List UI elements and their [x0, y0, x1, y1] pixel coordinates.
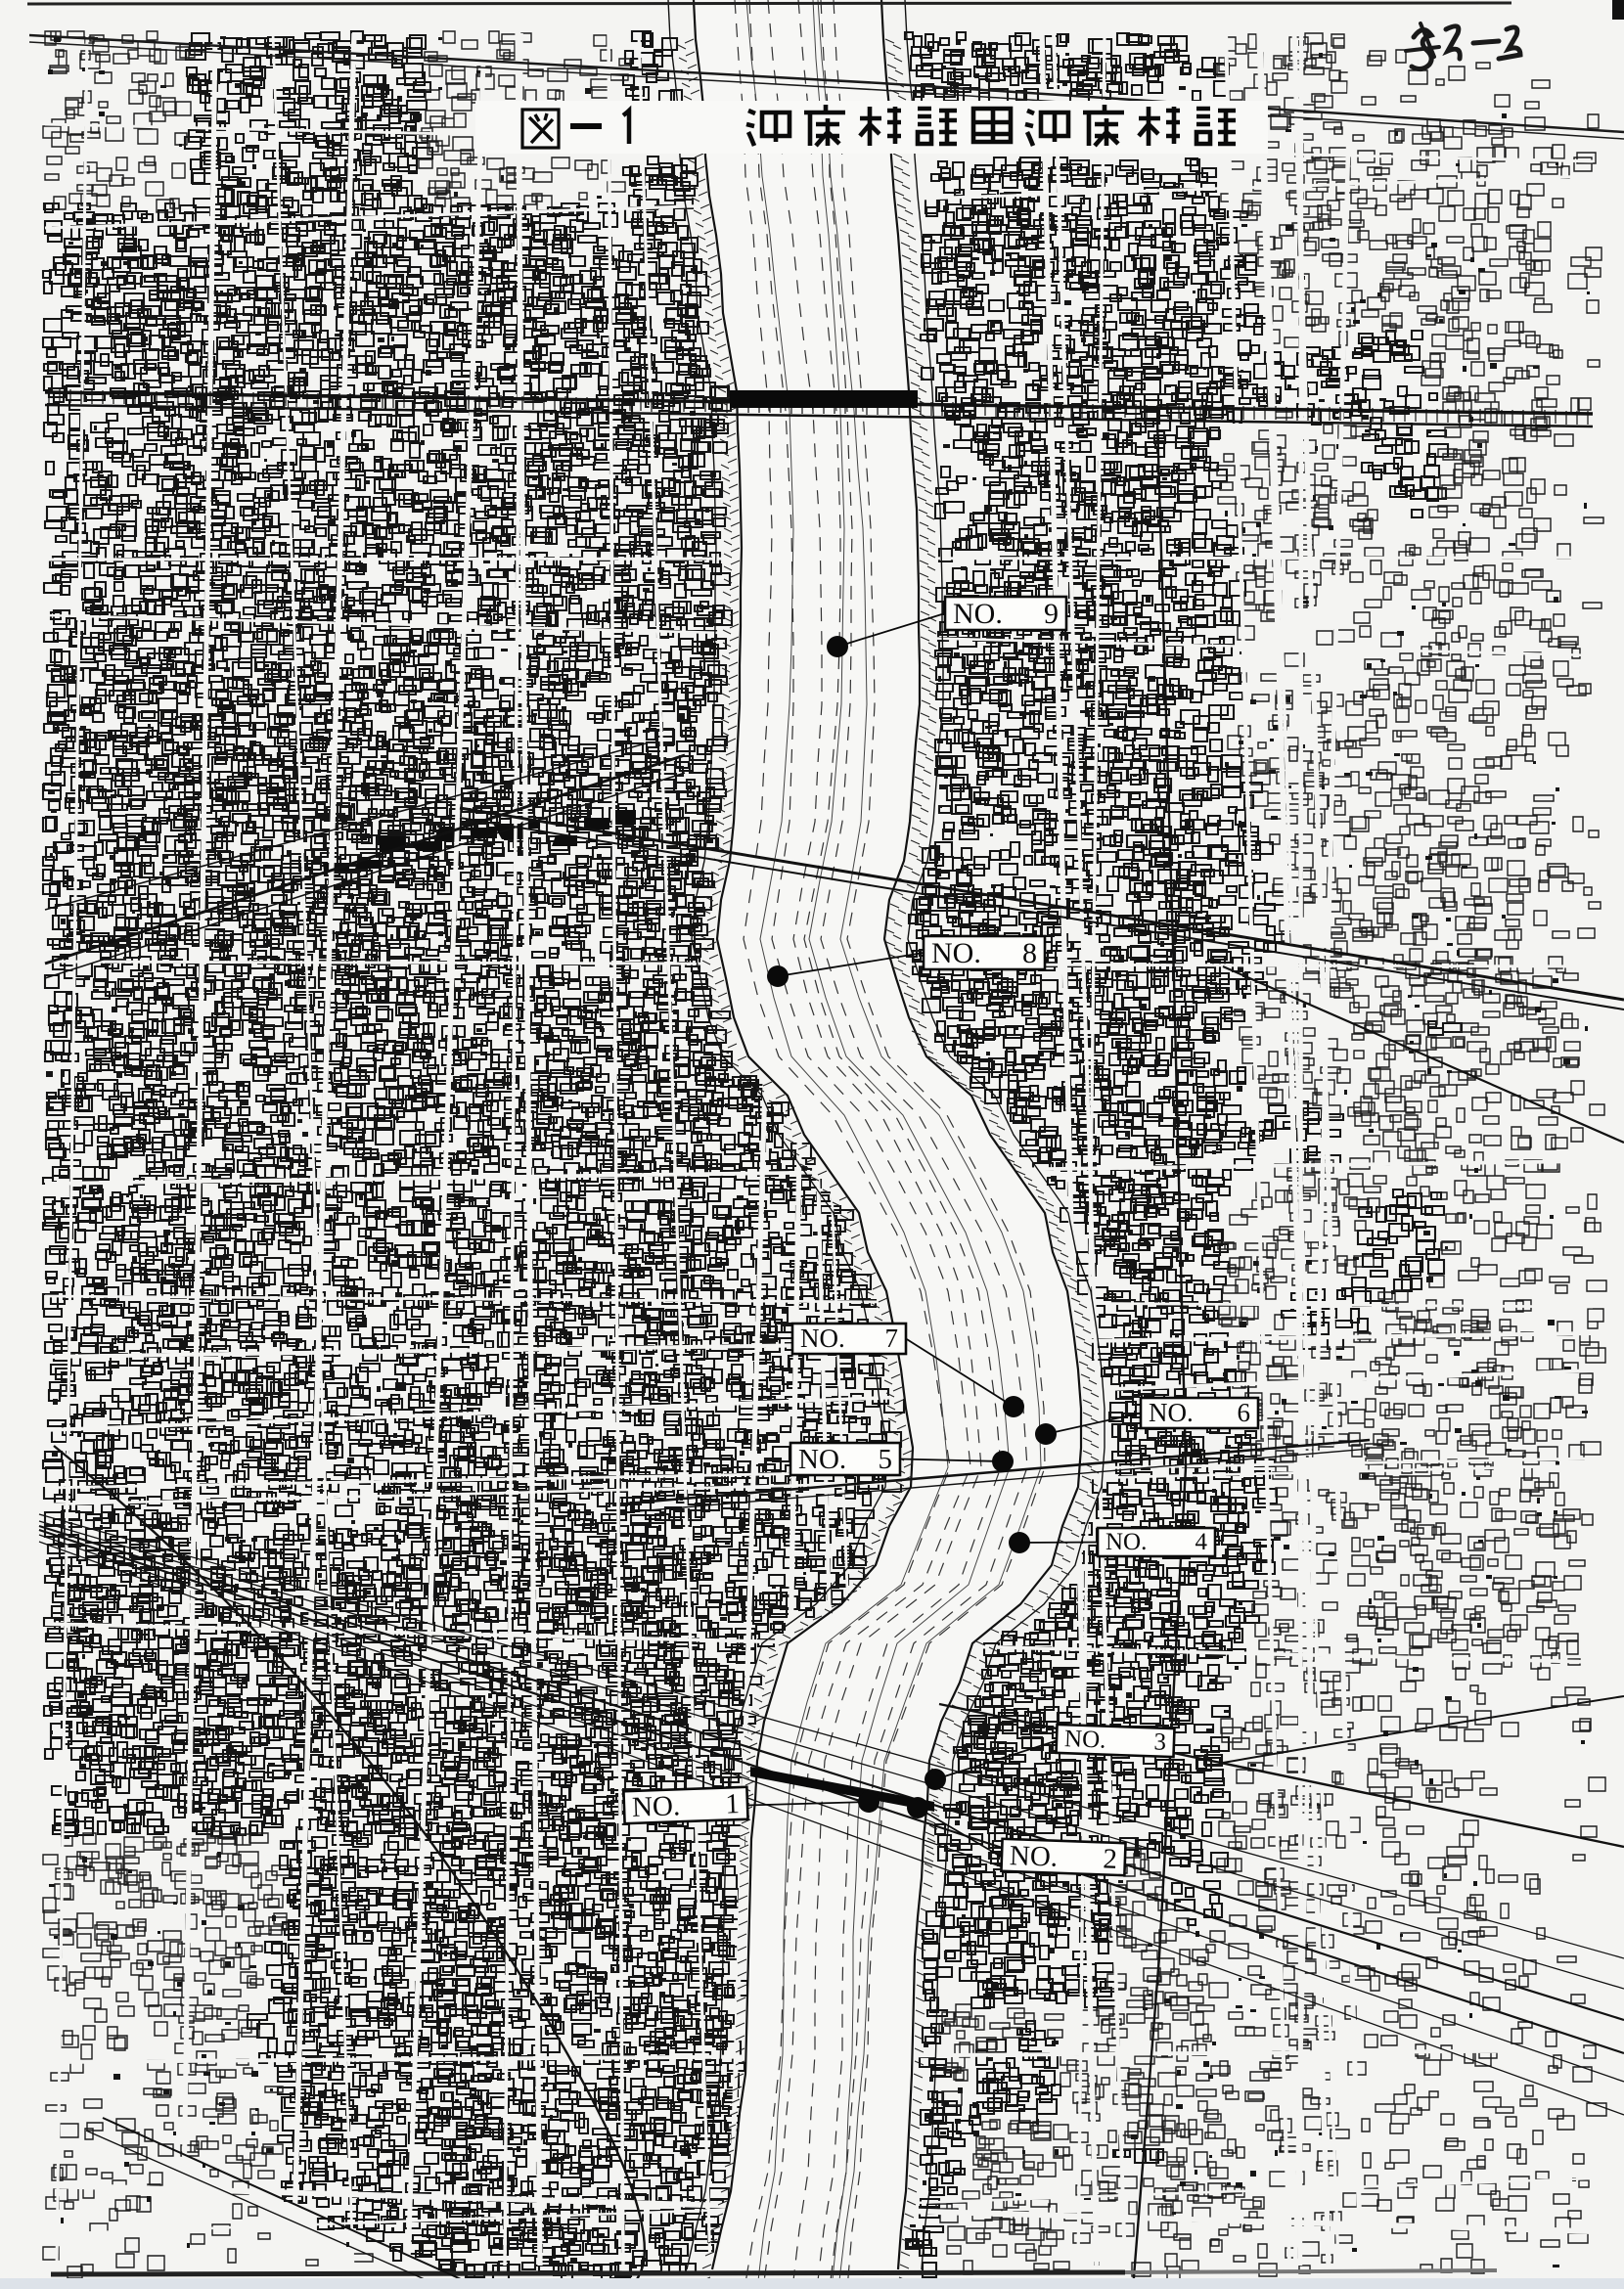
svg-text:NO.: NO. — [1009, 1840, 1058, 1873]
svg-text:3: 3 — [1153, 1728, 1166, 1755]
svg-text:9: 9 — [1044, 598, 1059, 630]
svg-text:NO.: NO. — [953, 598, 1003, 630]
svg-text:NO.: NO. — [1149, 1398, 1194, 1427]
svg-text:7: 7 — [885, 1324, 899, 1353]
svg-text:NO.: NO. — [1064, 1726, 1106, 1753]
svg-text:NO.: NO. — [800, 1324, 845, 1353]
svg-text:5: 5 — [879, 1444, 893, 1475]
svg-text:1: 1 — [725, 1788, 741, 1819]
svg-text:6: 6 — [1238, 1398, 1251, 1427]
svg-text:NO.: NO. — [631, 1790, 680, 1823]
svg-text:NO.: NO. — [931, 937, 981, 969]
svg-text:NO.: NO. — [1105, 1529, 1147, 1555]
svg-text:2: 2 — [1103, 1843, 1118, 1874]
svg-text:8: 8 — [1022, 937, 1037, 969]
svg-text:NO.: NO. — [798, 1444, 846, 1475]
svg-text:4: 4 — [1195, 1529, 1208, 1555]
